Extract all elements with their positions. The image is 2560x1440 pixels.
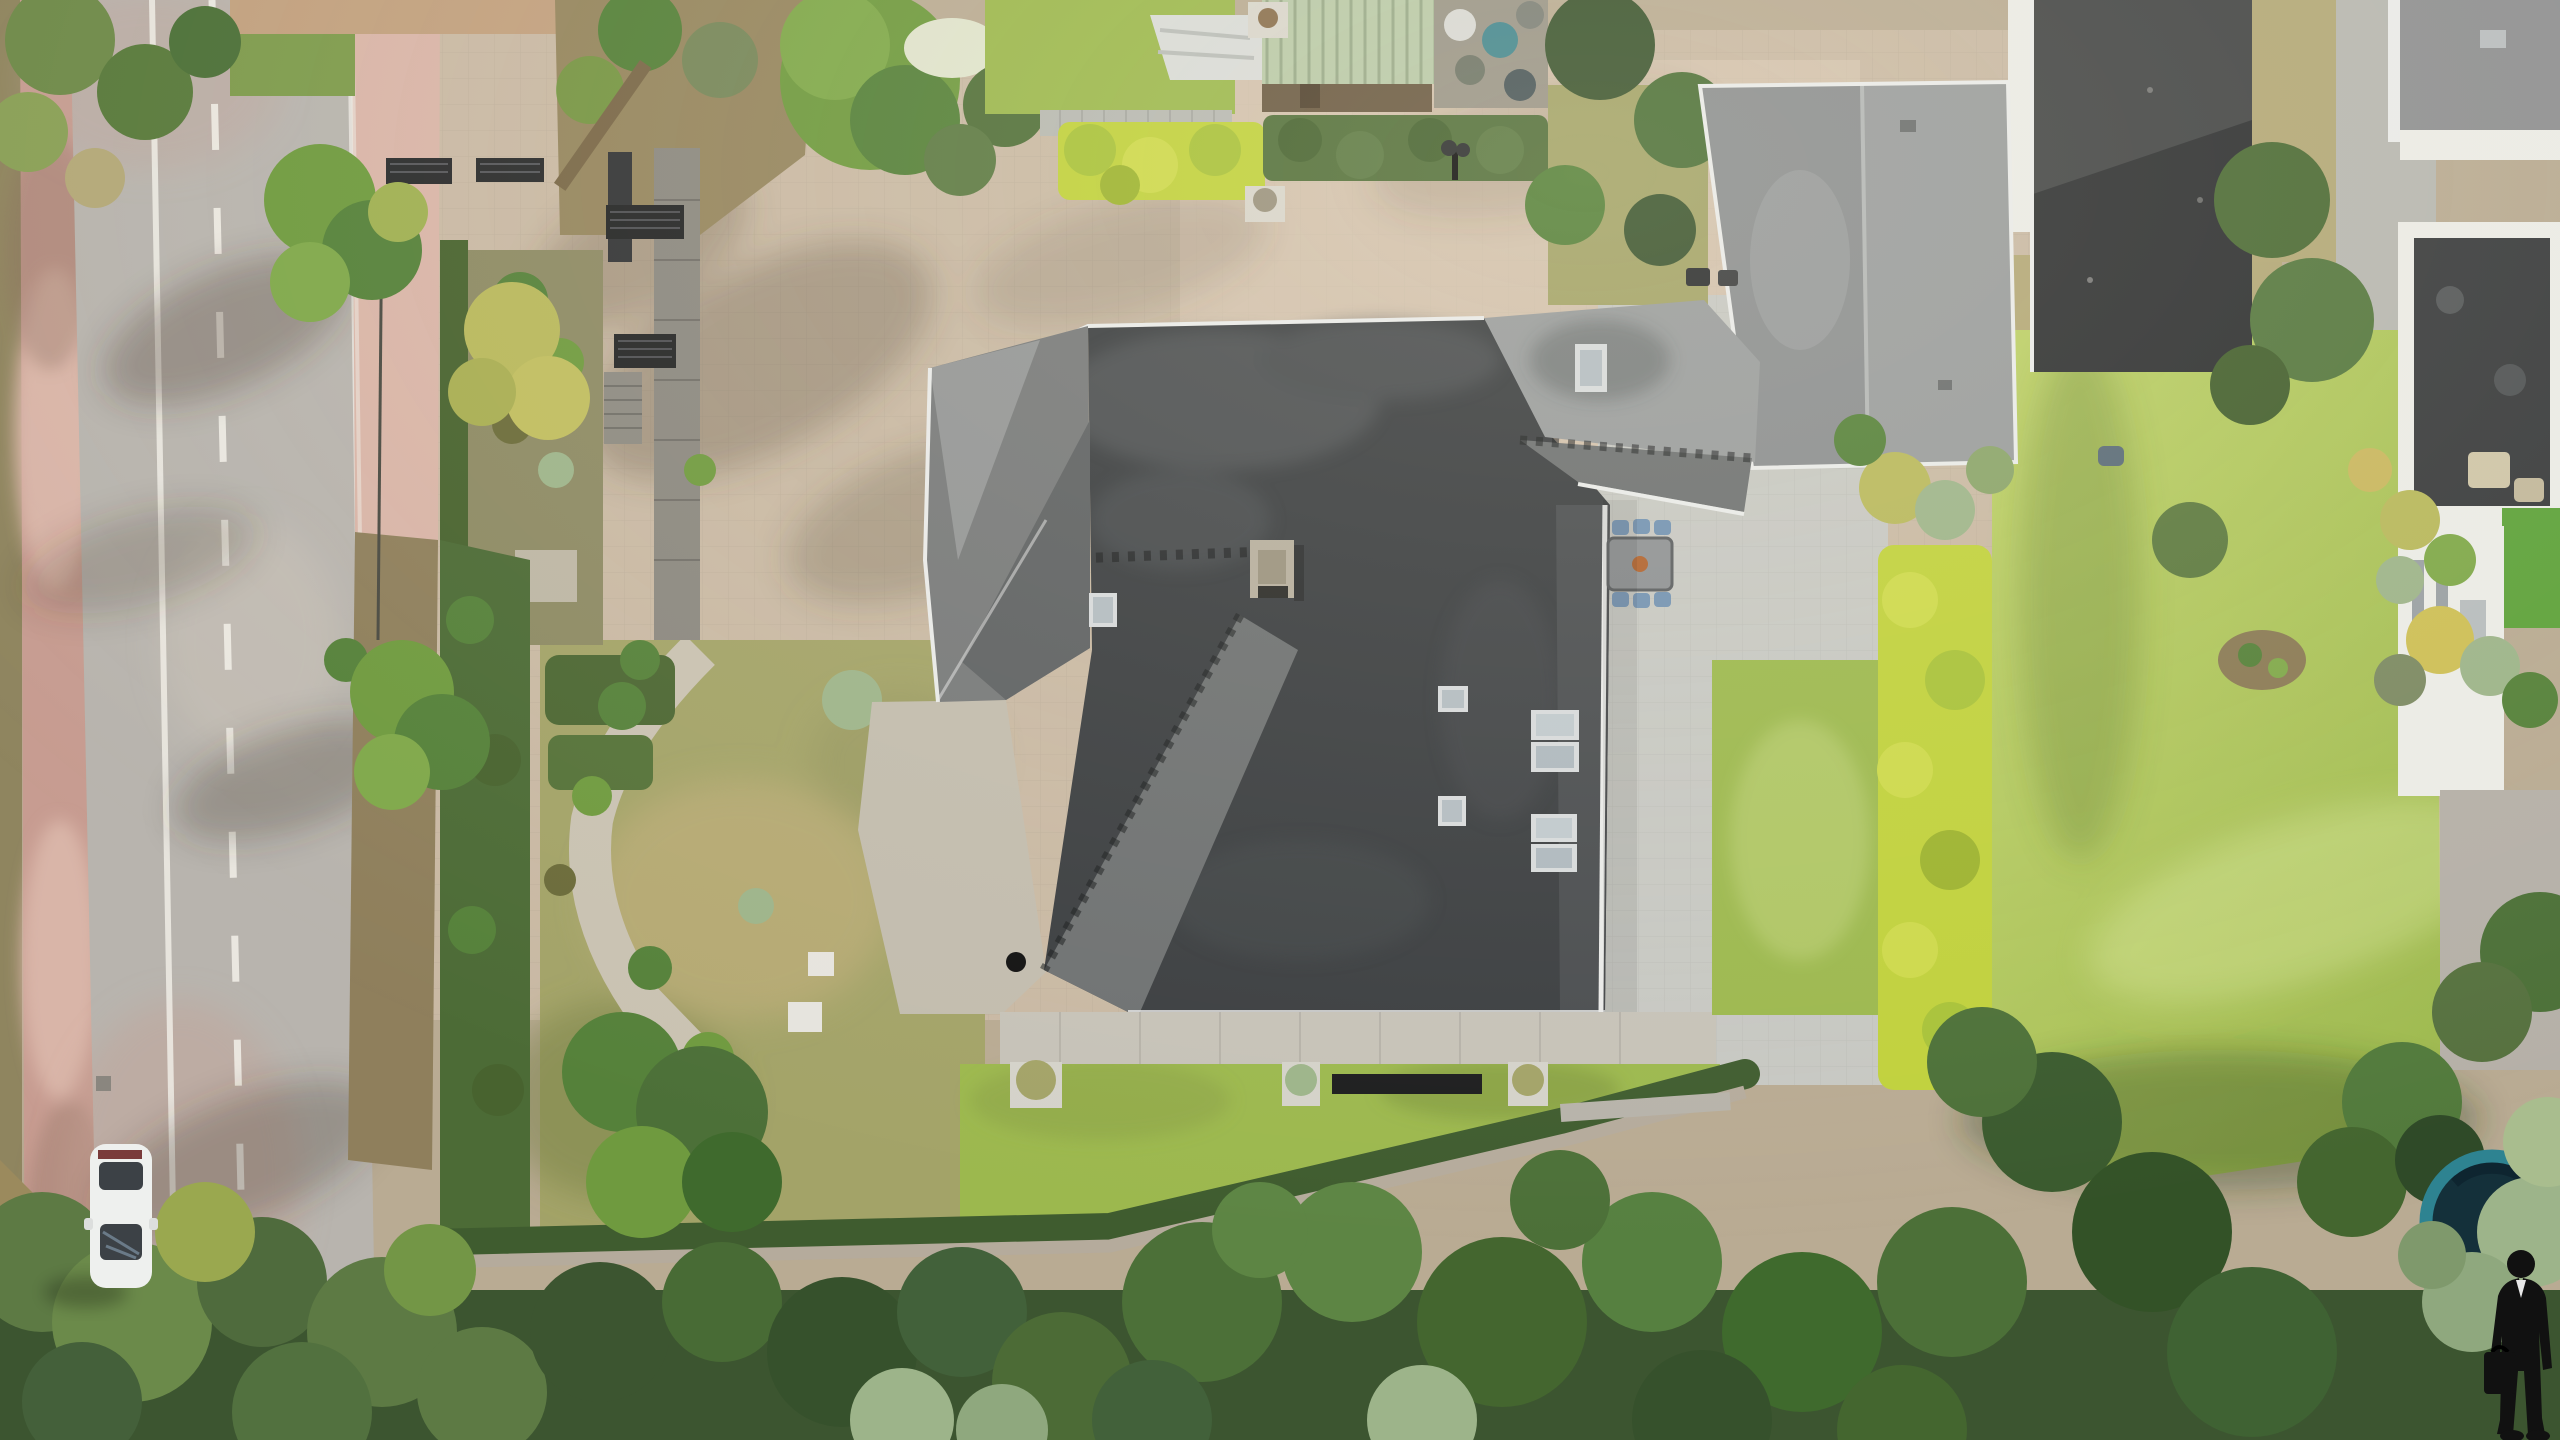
briefcase xyxy=(2484,1352,2516,1394)
sunlight-overlay xyxy=(0,0,2560,1440)
head xyxy=(2507,1250,2535,1278)
aerial-photo xyxy=(0,0,2560,1440)
